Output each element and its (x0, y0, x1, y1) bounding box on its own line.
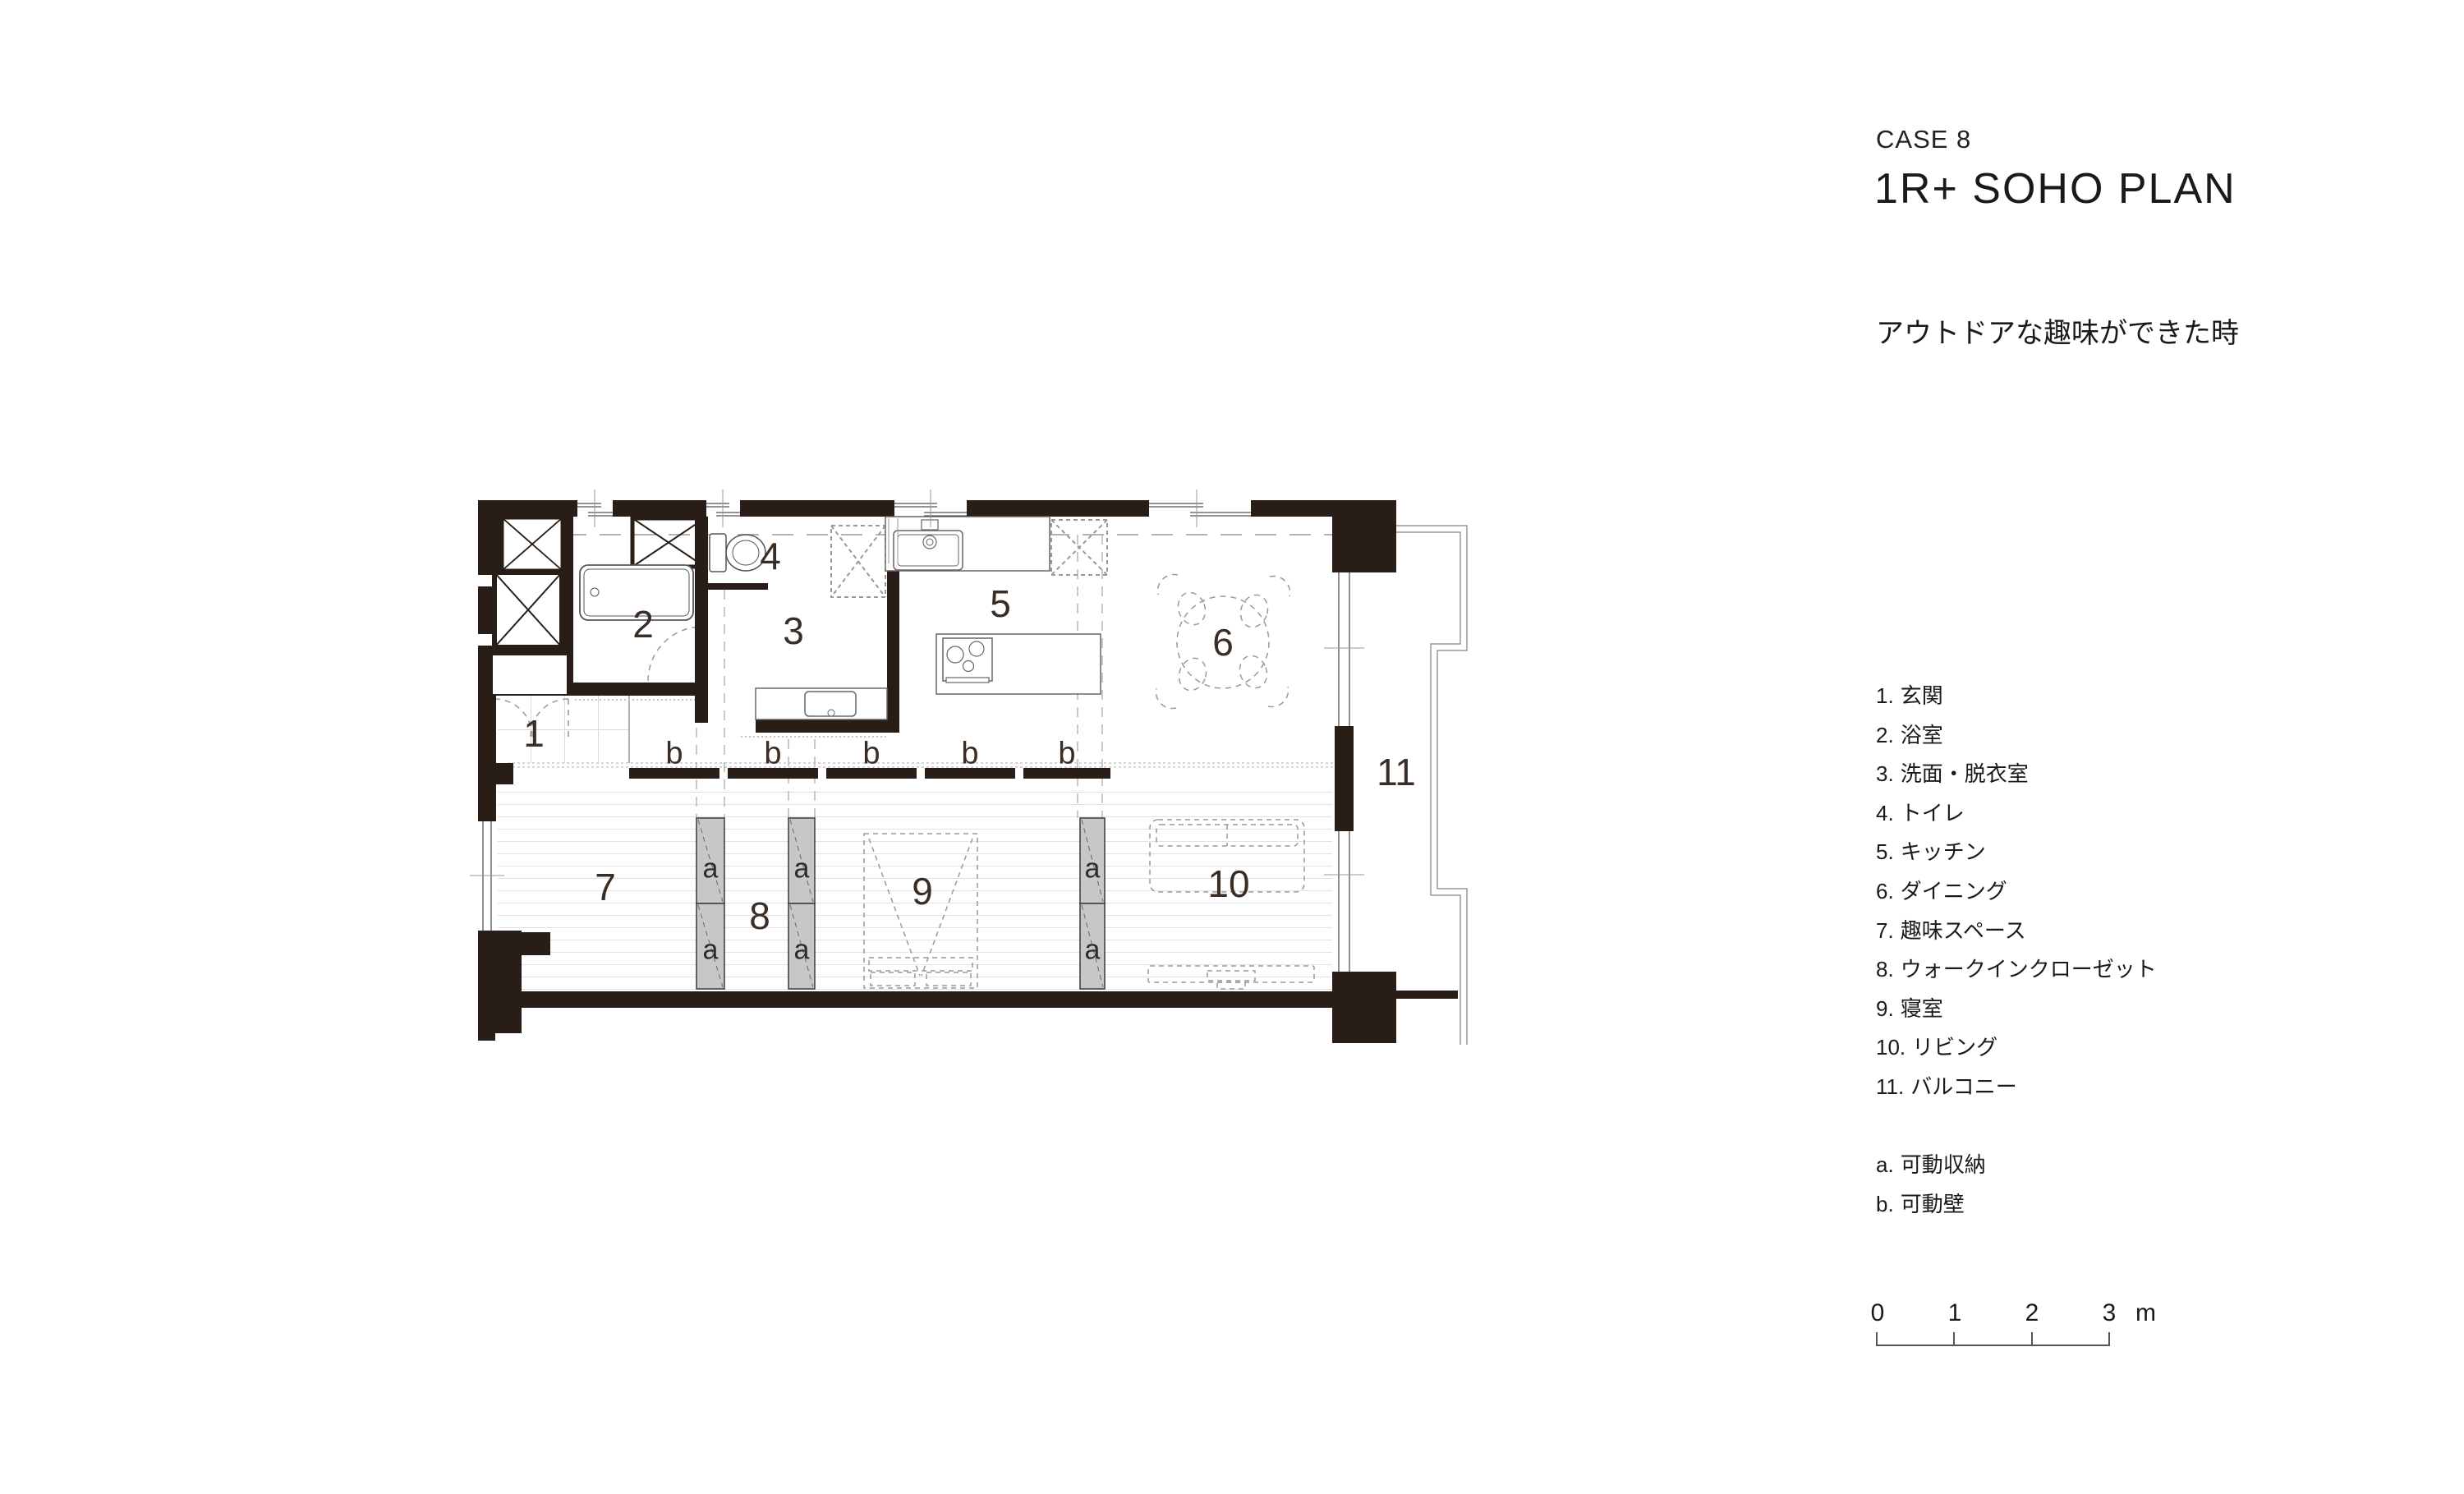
legend-item: 3.洗面・脱衣室 (1876, 755, 2157, 794)
legend-item: 4.トイレ (1876, 794, 2157, 834)
room-label-6: 6 (1212, 620, 1234, 664)
toilet (710, 534, 765, 572)
scale-unit-label: m (2135, 1299, 2156, 1327)
scale-tick (1876, 1332, 1878, 1345)
kitchen-sink-counter (885, 517, 1050, 571)
storage-label: a (1085, 853, 1101, 885)
storage-label: a (703, 853, 719, 885)
room-label-5: 5 (990, 582, 1011, 626)
legend-item: 1.玄関 (1876, 677, 2157, 716)
scale-line (1876, 1345, 2110, 1346)
storage-label: a (1085, 935, 1101, 967)
scale-tick-label: 3 (2103, 1299, 2117, 1327)
kitchen-island-cooktop (936, 634, 1101, 694)
movable-wall-label: b (961, 737, 978, 772)
movable-wall-label: b (665, 737, 683, 772)
room-label-3: 3 (783, 609, 804, 653)
subtitle: アウトドアな趣味ができた時 (1876, 310, 2239, 351)
room-label-7: 7 (595, 865, 616, 909)
room-label-8: 8 (749, 894, 770, 938)
legend-item: 2.浴室 (1876, 716, 2157, 756)
movable-track-dotted (508, 763, 1354, 767)
case-label: CASE 8 (1876, 125, 1971, 154)
movable-wall-label: b (1058, 737, 1075, 772)
legend-item: 10.リビング (1876, 1028, 2157, 1068)
page: 1 2 3 4 5 6 7 8 9 10 11 b b b b b a a a … (0, 0, 2464, 1494)
scale-bar: 0 1 2 3 m (1876, 1298, 2172, 1355)
movable-wall-label: b (862, 737, 880, 772)
scale-tick-label: 1 (1948, 1299, 1962, 1327)
legend-list: 1.玄関 2.浴室 3.洗面・脱衣室 4.トイレ 5.キッチン 6.ダイニング … (1876, 677, 2157, 1107)
legend-item: b.可動壁 (1876, 1185, 1986, 1225)
room-label-2: 2 (632, 602, 654, 646)
room-label-4: 4 (760, 534, 781, 578)
room-label-1: 1 (523, 711, 545, 756)
page-title: 1R+ SOHO PLAN (1874, 164, 2236, 214)
room-label-9: 9 (912, 869, 933, 913)
scale-tick-label: 2 (2025, 1299, 2039, 1327)
legend-item: 11.バルコニー (1876, 1068, 2157, 1107)
scale-tick (1953, 1332, 1955, 1345)
scale-tick (2031, 1332, 2033, 1345)
legend-item: 5.キッチン (1876, 833, 2157, 872)
room-label-10: 10 (1207, 862, 1249, 906)
legend-item: 6.ダイニング (1876, 872, 2157, 912)
storage-label: a (794, 935, 810, 967)
bath-door-swing (648, 627, 702, 681)
storage-label: a (794, 853, 810, 885)
scale-tick (2108, 1332, 2110, 1345)
legend-item: 7.趣味スペース (1876, 912, 2157, 951)
tv-board (1148, 966, 1314, 989)
legend-sub-list: a.可動収納 b.可動壁 (1876, 1146, 1986, 1224)
washstand (756, 688, 887, 719)
legend-item: 8.ウォークインクローゼット (1876, 950, 2157, 990)
scale-tick-label: 0 (1871, 1299, 1885, 1327)
room-label-11: 11 (1377, 750, 1416, 794)
storage-label: a (703, 935, 719, 967)
legend-item: a.可動収納 (1876, 1146, 1986, 1185)
legend-item: 9.寝室 (1876, 990, 2157, 1029)
movable-wall-label: b (764, 737, 781, 772)
